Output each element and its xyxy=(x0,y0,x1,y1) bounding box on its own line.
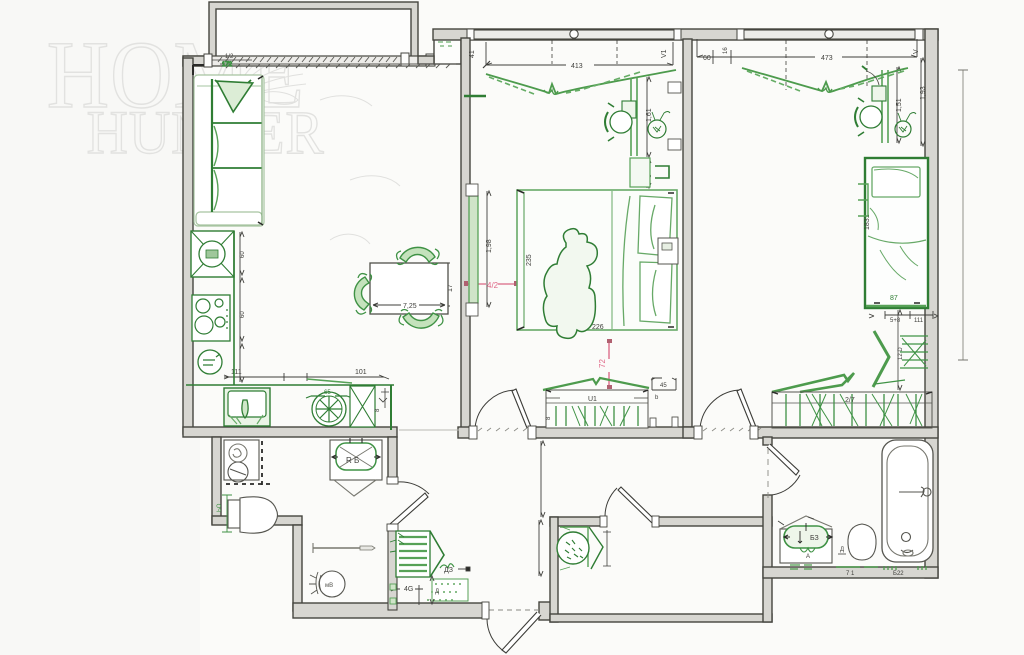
svg-text:1,61: 1,61 xyxy=(646,108,653,122)
svg-text:413: 413 xyxy=(571,63,583,70)
svg-text:60: 60 xyxy=(240,311,246,318)
svg-text:473: 473 xyxy=(821,55,833,62)
svg-text:А: А xyxy=(806,554,810,560)
svg-text:Д: Д xyxy=(840,547,844,553)
svg-text:16: 16 xyxy=(723,47,729,54)
svg-text:7 1: 7 1 xyxy=(846,571,855,577)
svg-text:4G: 4G xyxy=(404,586,413,593)
svg-text:U1: U1 xyxy=(588,396,597,403)
svg-text:1,98: 1,98 xyxy=(486,239,493,253)
svg-text:1/2: 1/2 xyxy=(225,54,234,60)
svg-text:V: V xyxy=(913,49,920,54)
svg-text:мВ: мВ xyxy=(325,583,333,589)
svg-text:2/7: 2/7 xyxy=(845,397,855,404)
svg-text:ДЗ: ДЗ xyxy=(444,567,453,574)
svg-text:1,51: 1,51 xyxy=(896,98,903,112)
svg-text:226: 226 xyxy=(592,324,604,331)
svg-text:V1: V1 xyxy=(661,49,668,58)
svg-text:R Б: R Б xyxy=(346,456,359,465)
svg-text:172: 172 xyxy=(222,62,233,68)
svg-text:4/2: 4/2 xyxy=(487,281,499,290)
svg-text:111: 111 xyxy=(914,318,924,324)
svg-text:101: 101 xyxy=(355,369,367,376)
svg-text:ЬО: ЬО xyxy=(217,503,223,512)
svg-text:5+8: 5+8 xyxy=(890,318,901,324)
svg-text:45: 45 xyxy=(660,383,667,389)
svg-text:72: 72 xyxy=(598,359,607,368)
svg-text:Д: Д xyxy=(435,589,439,595)
svg-text:60: 60 xyxy=(703,55,711,62)
svg-text:1,93: 1,93 xyxy=(920,86,927,100)
svg-text:БЗ: БЗ xyxy=(810,535,819,542)
svg-text:87: 87 xyxy=(890,295,898,302)
svg-text:235: 235 xyxy=(526,254,533,266)
svg-text:Б22: Б22 xyxy=(893,571,904,577)
svg-text:65: 65 xyxy=(324,390,331,396)
svg-text:60: 60 xyxy=(240,251,246,258)
svg-text:12 D: 12 D xyxy=(898,347,904,360)
svg-text:41: 41 xyxy=(469,50,476,58)
